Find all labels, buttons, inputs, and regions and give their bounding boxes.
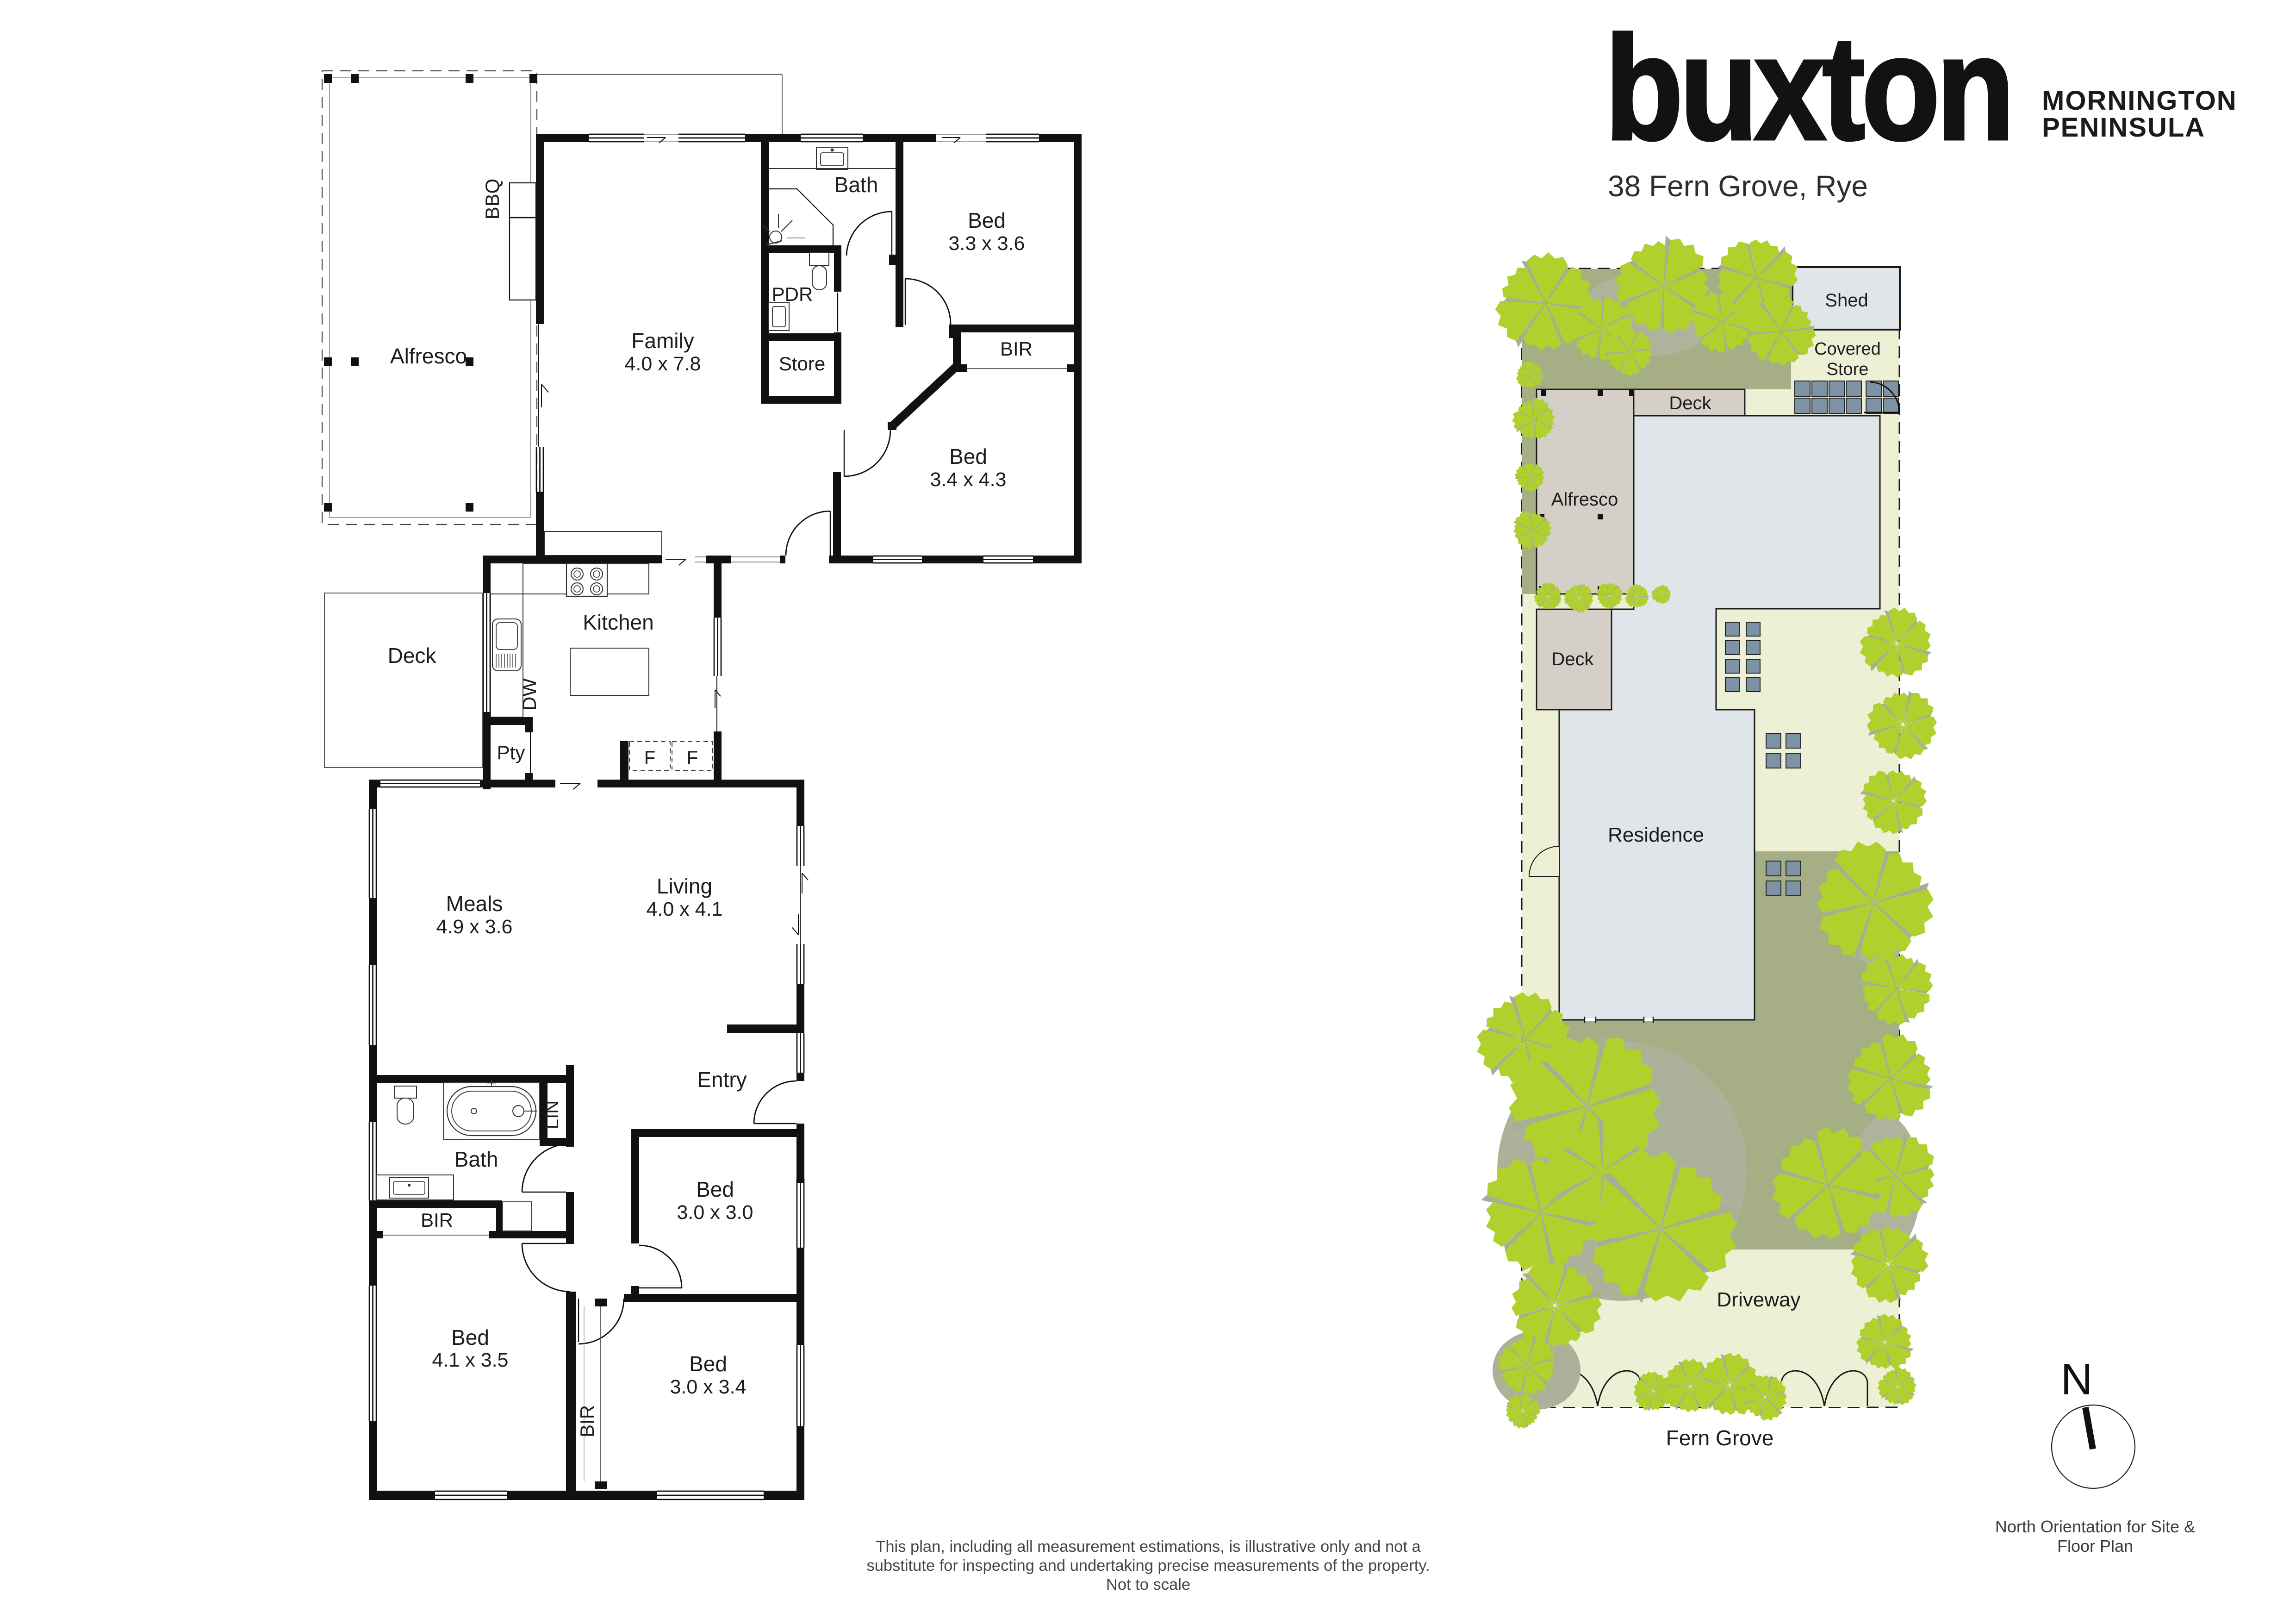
svg-text:Bed: Bed	[689, 1352, 727, 1376]
svg-text:Driveway: Driveway	[1717, 1288, 1801, 1311]
svg-text:Kitchen: Kitchen	[583, 610, 653, 634]
svg-text:Bed: Bed	[968, 208, 1006, 232]
svg-text:Covered: Covered	[1814, 339, 1881, 359]
svg-text:North Orientation for Site &: North Orientation for Site &	[1995, 1517, 2195, 1536]
svg-text:3.0 x 3.0: 3.0 x 3.0	[677, 1201, 753, 1224]
svg-text:Living: Living	[657, 874, 712, 898]
svg-text:MORNINGTON: MORNINGTON	[2042, 86, 2237, 116]
svg-text:Family: Family	[631, 329, 694, 353]
svg-text:Store: Store	[1827, 360, 1869, 379]
svg-text:substitute for inspecting and: substitute for inspecting and undertakin…	[866, 1557, 1430, 1574]
svg-text:PENINSULA: PENINSULA	[2042, 112, 2205, 143]
svg-text:BIR: BIR	[576, 1405, 598, 1437]
svg-text:Bed: Bed	[949, 444, 987, 468]
svg-text:LIN: LIN	[542, 1100, 562, 1129]
svg-text:PDR: PDR	[772, 283, 813, 305]
svg-text:Alfresco: Alfresco	[390, 344, 467, 368]
svg-text:4.9 x 3.6: 4.9 x 3.6	[436, 916, 513, 938]
svg-text:Bath: Bath	[454, 1147, 498, 1171]
svg-text:4.1 x 3.5: 4.1 x 3.5	[432, 1349, 509, 1371]
svg-text:N: N	[2060, 1355, 2092, 1404]
svg-text:F: F	[644, 748, 655, 768]
svg-text:BBQ: BBQ	[481, 179, 503, 220]
svg-text:Deck: Deck	[1669, 393, 1711, 413]
svg-text:3.4 x 4.3: 3.4 x 4.3	[930, 468, 1007, 491]
svg-text:F: F	[687, 748, 698, 768]
svg-text:buxton: buxton	[1605, 6, 2011, 170]
svg-text:This plan, including all measu: This plan, including all measurement est…	[876, 1538, 1421, 1555]
svg-text:Store: Store	[779, 353, 825, 375]
svg-text:4.0 x 4.1: 4.0 x 4.1	[647, 898, 723, 920]
svg-text:Alfresco: Alfresco	[1551, 489, 1618, 510]
svg-text:DW: DW	[518, 678, 540, 711]
svg-text:Meals: Meals	[446, 892, 503, 916]
svg-text:Floor Plan: Floor Plan	[2057, 1537, 2133, 1555]
svg-text:Bath: Bath	[834, 173, 878, 197]
svg-text:Not to scale: Not to scale	[1106, 1576, 1190, 1593]
svg-text:Bed: Bed	[451, 1325, 489, 1349]
svg-text:BIR: BIR	[1000, 338, 1033, 360]
svg-text:Shed: Shed	[1825, 290, 1868, 311]
svg-text:3.3 x 3.6: 3.3 x 3.6	[949, 232, 1025, 255]
svg-text:4.0 x 7.8: 4.0 x 7.8	[625, 353, 701, 375]
svg-text:Residence: Residence	[1608, 824, 1704, 846]
svg-text:Bed: Bed	[696, 1177, 734, 1201]
svg-text:Pty: Pty	[497, 742, 525, 763]
svg-text:Deck: Deck	[388, 643, 437, 668]
svg-text:Fern Grove: Fern Grove	[1666, 1426, 1774, 1450]
svg-text:BIR: BIR	[421, 1209, 453, 1231]
svg-text:Deck: Deck	[1551, 649, 1594, 669]
svg-text:Entry: Entry	[697, 1068, 747, 1092]
svg-text:38 Fern Grove, Rye: 38 Fern Grove, Rye	[1608, 169, 1868, 203]
svg-text:3.0 x 3.4: 3.0 x 3.4	[670, 1376, 747, 1398]
